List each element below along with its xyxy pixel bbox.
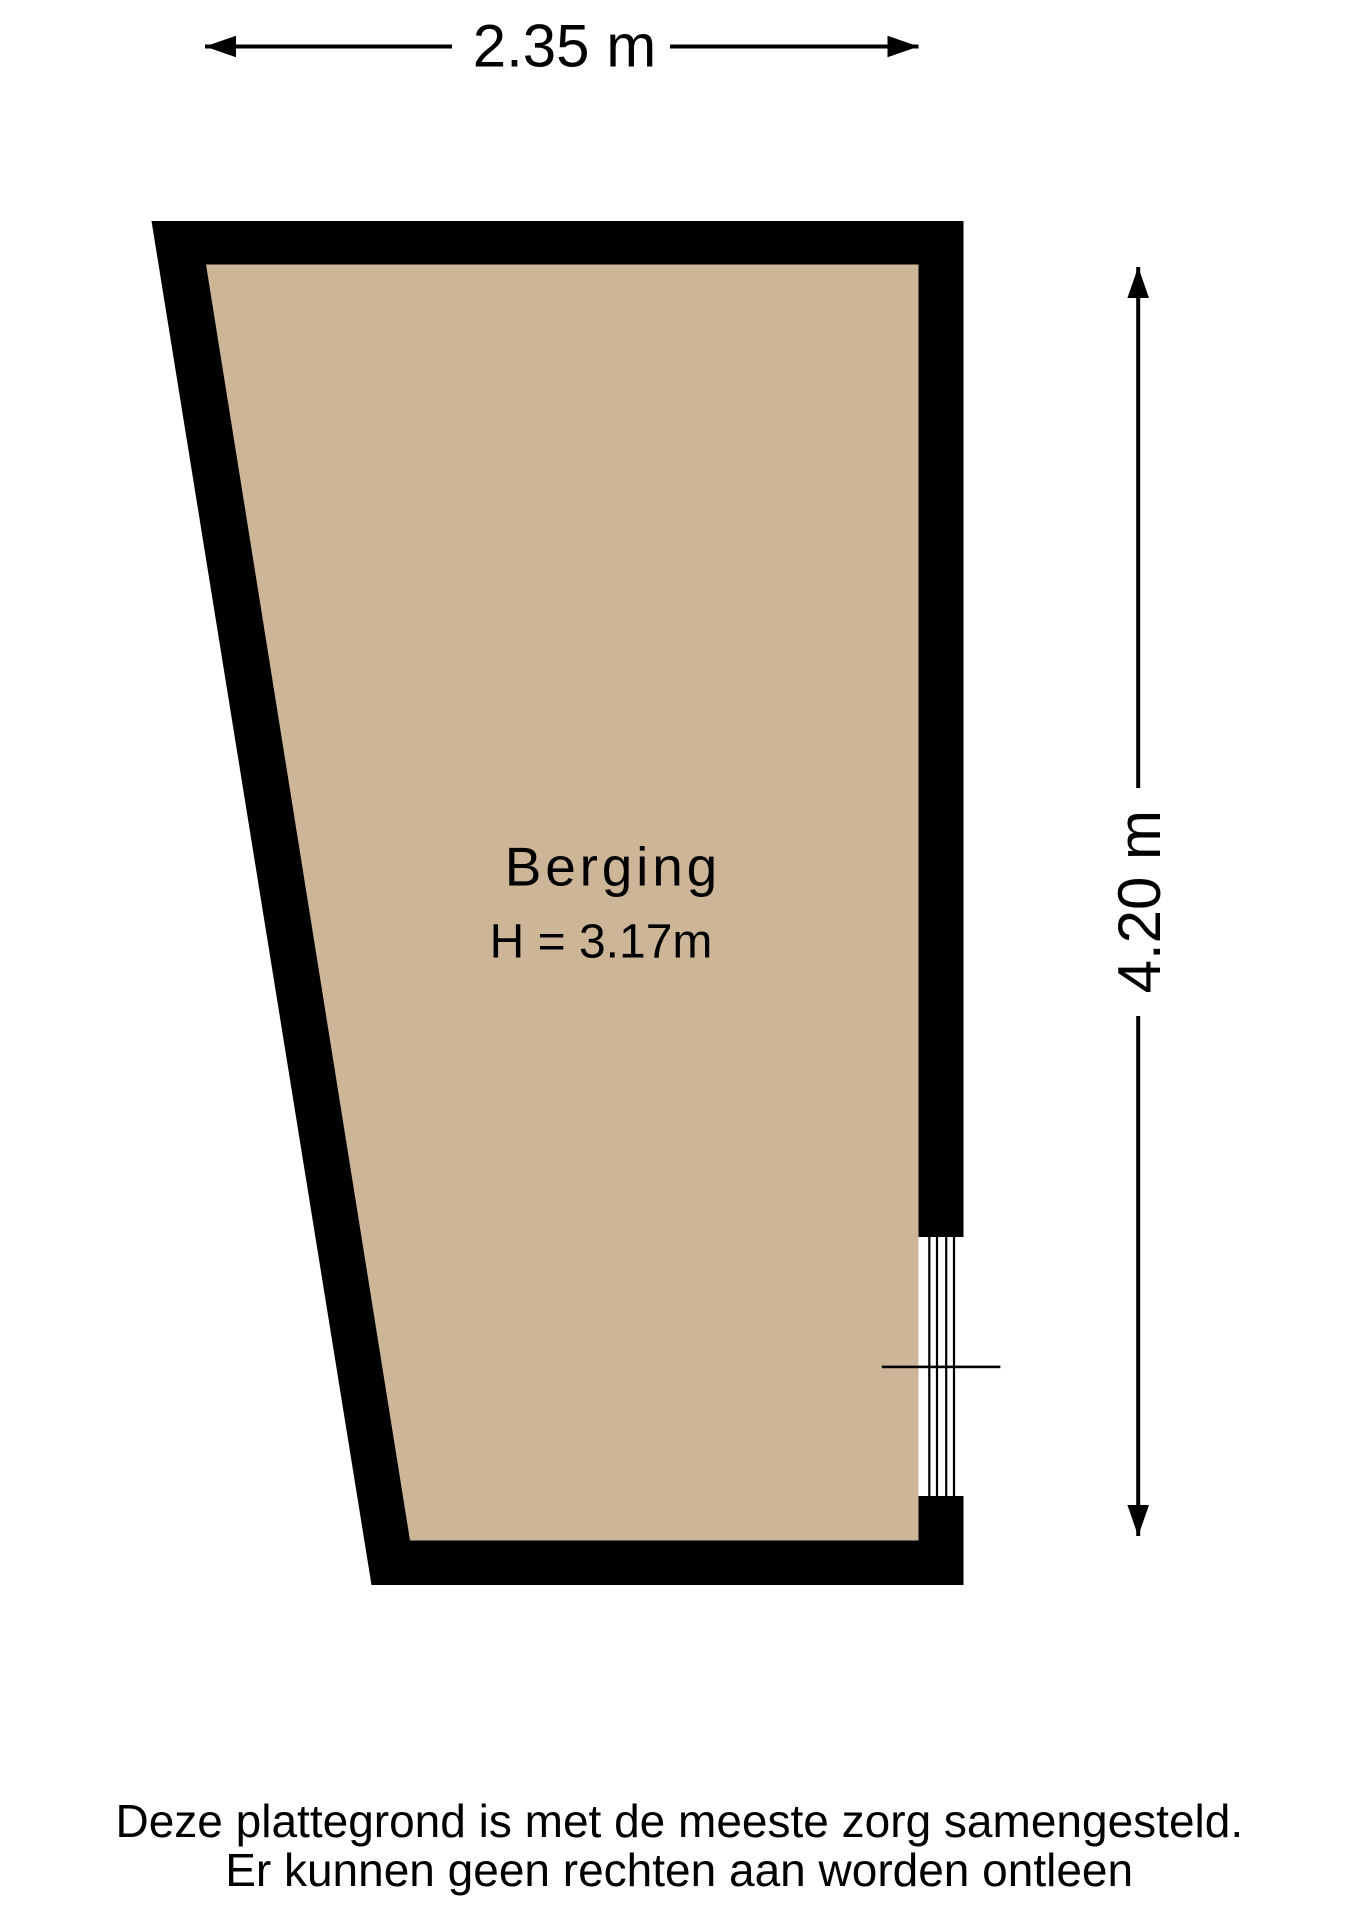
svg-text:H = 3.17m: H = 3.17m <box>490 916 713 969</box>
svg-text:2.35 m: 2.35 m <box>473 13 656 80</box>
svg-text:Er kunnen geen rechten aan wor: Er kunnen geen rechten aan worden ontlee… <box>225 1844 1133 1896</box>
svg-text:Berging: Berging <box>505 836 721 898</box>
svg-text:4.20 m: 4.20 m <box>1106 810 1173 993</box>
svg-text:Deze plattegrond is met de mee: Deze plattegrond is met de meeste zorg s… <box>116 1795 1244 1847</box>
